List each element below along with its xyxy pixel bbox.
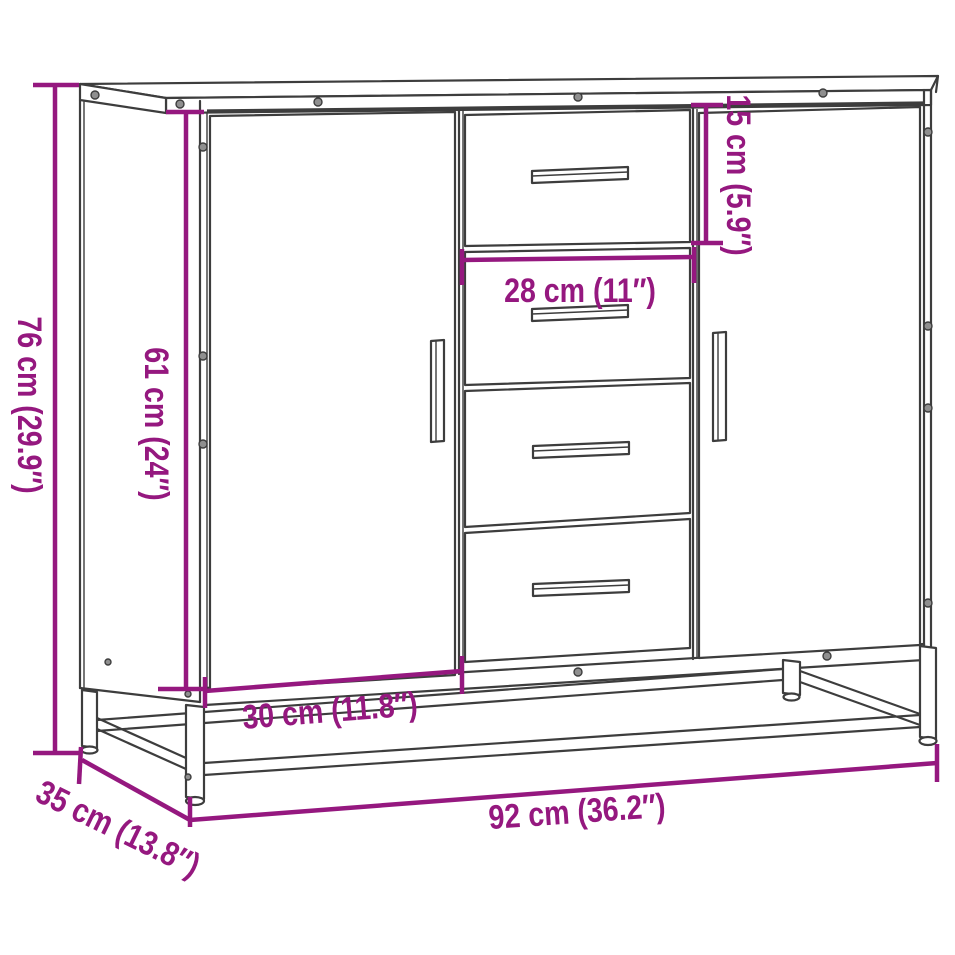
left-door bbox=[210, 112, 455, 690]
dimension-label-top-drawer-height: 15 cm (5.9″) bbox=[721, 94, 755, 255]
dimension-label-body-height: 61 cm (24″) bbox=[139, 347, 173, 500]
back-right-leg bbox=[783, 660, 800, 695]
sideboard-drawing bbox=[80, 76, 938, 805]
dimension-label-drawer-width: 28 cm (11″) bbox=[504, 274, 656, 308]
drawer-column bbox=[465, 110, 690, 662]
dimension-label-total-height: 76 cm (29.9″) bbox=[12, 316, 46, 493]
drawer-handle-3 bbox=[533, 442, 629, 458]
front-right-leg bbox=[920, 646, 936, 739]
right-frame-post bbox=[924, 90, 931, 646]
front-left-leg bbox=[186, 705, 204, 799]
left-door-handle bbox=[431, 340, 444, 442]
drawer-handle-1 bbox=[532, 167, 628, 183]
left-divider bbox=[459, 110, 463, 674]
back-left-leg bbox=[82, 690, 97, 748]
right-door-handle bbox=[713, 332, 726, 441]
drawer-handle-4 bbox=[533, 580, 629, 596]
right-divider bbox=[693, 109, 697, 659]
diagram-canvas: 76 cm (29.9″) 61 cm (24″) 15 cm (5.9″) 2… bbox=[0, 0, 955, 955]
